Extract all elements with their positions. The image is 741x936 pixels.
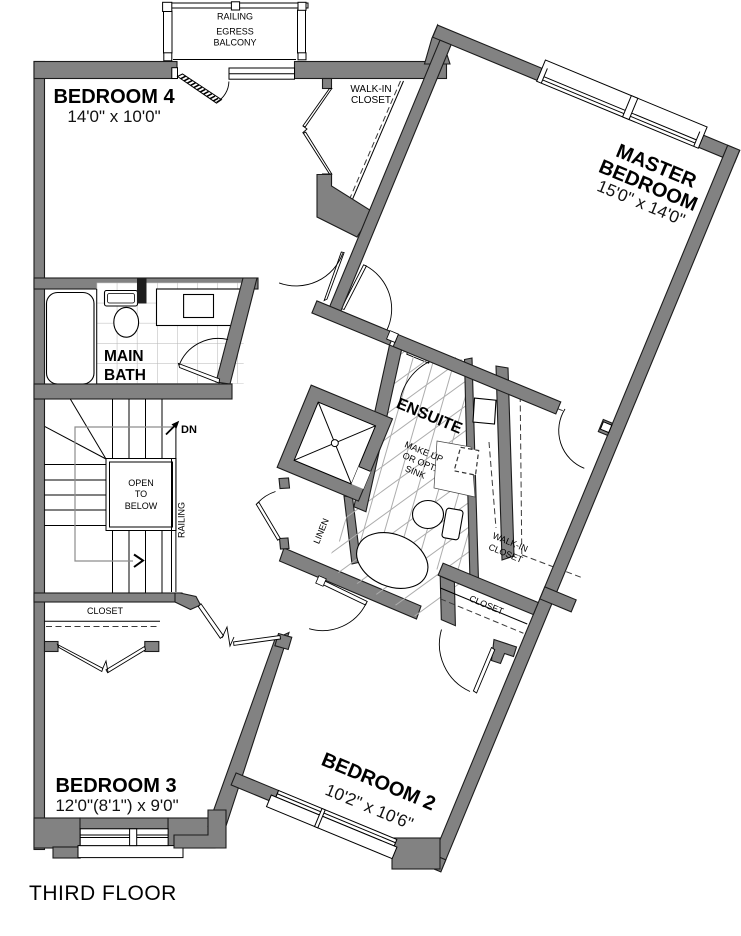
- svg-text:14'0" x 10'0": 14'0" x 10'0": [67, 107, 160, 126]
- svg-text:BEDROOM 4: BEDROOM 4: [53, 86, 175, 108]
- svg-text:RAILING: RAILING: [177, 502, 187, 538]
- svg-text:BALCONY: BALCONY: [213, 38, 256, 48]
- svg-text:TO: TO: [135, 489, 147, 499]
- svg-text:BELOW: BELOW: [125, 501, 158, 511]
- svg-text:DN: DN: [181, 424, 197, 436]
- svg-text:MAIN: MAIN: [104, 348, 144, 365]
- svg-text:CLOSET: CLOSET: [351, 95, 391, 106]
- svg-text:12'0"(8'1") x 9'0": 12'0"(8'1") x 9'0": [55, 796, 178, 815]
- svg-text:BEDROOM 3: BEDROOM 3: [55, 775, 176, 797]
- svg-text:RAILING: RAILING: [217, 12, 253, 22]
- svg-text:OPEN: OPEN: [128, 478, 154, 488]
- svg-text:BATH: BATH: [104, 367, 146, 384]
- svg-text:WALK-IN: WALK-IN: [350, 84, 391, 95]
- svg-text:THIRD FLOOR: THIRD FLOOR: [29, 882, 177, 905]
- svg-text:EGRESS: EGRESS: [216, 27, 254, 37]
- svg-text:CLOSET: CLOSET: [87, 606, 124, 616]
